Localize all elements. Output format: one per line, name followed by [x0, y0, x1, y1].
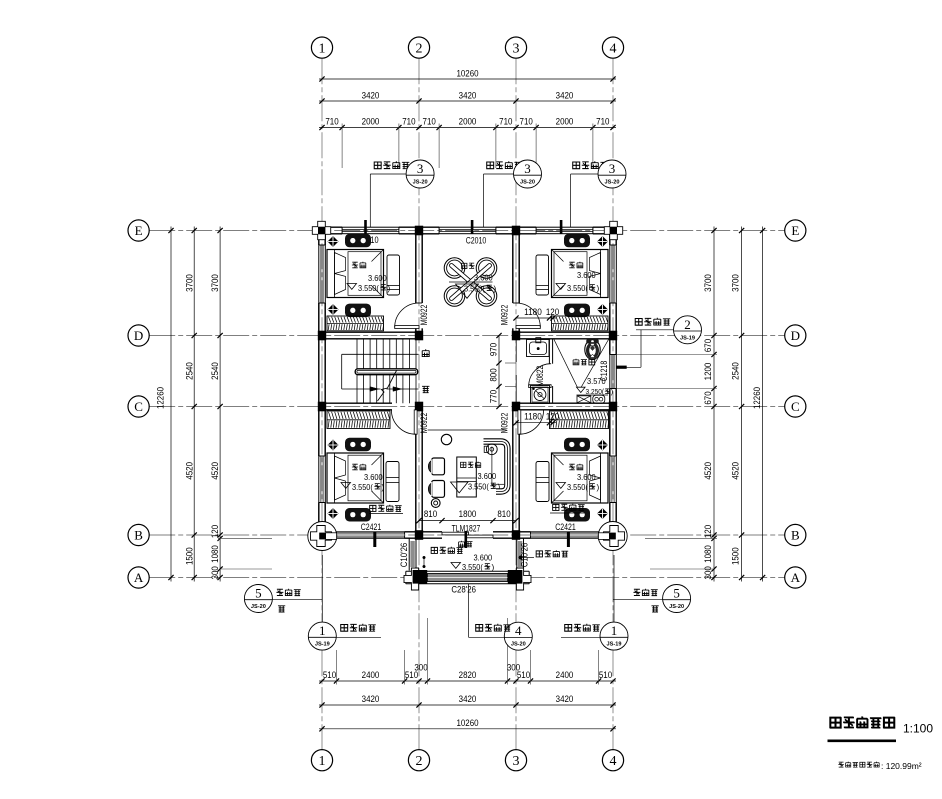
svg-text:3.600: 3.600 [368, 273, 387, 283]
svg-text:JS-19: JS-19 [680, 335, 695, 341]
svg-text:1800: 1800 [459, 509, 477, 520]
svg-text:120: 120 [210, 525, 221, 538]
svg-text:3.550(: 3.550( [464, 284, 485, 294]
svg-text:1:100: 1:100 [903, 722, 933, 736]
svg-text:970: 970 [489, 343, 500, 356]
svg-text:3700: 3700 [210, 274, 221, 292]
svg-text:: 120.99m²: : 120.99m² [881, 761, 922, 771]
svg-text:): ) [597, 284, 600, 293]
svg-text:2400: 2400 [362, 670, 380, 681]
svg-text:B: B [134, 528, 143, 543]
svg-text:2540: 2540 [184, 362, 195, 380]
svg-text:3.550(: 3.550( [352, 482, 373, 492]
svg-text:4: 4 [610, 754, 617, 769]
svg-text:C28'26: C28'26 [451, 585, 476, 595]
svg-text:3.600: 3.600 [364, 472, 383, 482]
svg-text:C2421: C2421 [361, 522, 382, 532]
svg-text:3420: 3420 [459, 91, 477, 102]
svg-text:2820: 2820 [459, 670, 477, 681]
svg-text:): ) [494, 285, 497, 294]
svg-text:): ) [611, 387, 613, 396]
svg-text:): ) [382, 483, 385, 492]
svg-text:770: 770 [489, 390, 500, 403]
svg-text:10260: 10260 [456, 718, 478, 729]
svg-text:B: B [791, 528, 800, 543]
svg-text:710: 710 [402, 117, 415, 128]
svg-text:M0822: M0822 [535, 366, 545, 387]
svg-text:710: 710 [499, 117, 512, 128]
svg-text:300: 300 [703, 566, 714, 579]
svg-text:670: 670 [703, 339, 714, 352]
svg-text:710: 710 [325, 117, 338, 128]
svg-text:JS-19: JS-19 [315, 642, 330, 648]
svg-text:3.600: 3.600 [577, 472, 596, 482]
svg-text:3: 3 [609, 161, 616, 176]
svg-text:D: D [791, 328, 800, 343]
svg-text:800: 800 [489, 368, 500, 381]
svg-text:4: 4 [610, 41, 617, 56]
svg-text:300: 300 [210, 566, 221, 579]
svg-text:1: 1 [611, 623, 618, 638]
svg-text:C2010: C2010 [466, 236, 487, 246]
svg-text:A: A [791, 570, 801, 585]
svg-text:10: 10 [370, 235, 378, 245]
svg-text:JS-20: JS-20 [605, 180, 620, 186]
svg-text:5: 5 [255, 586, 262, 601]
svg-text:3.550(: 3.550( [567, 482, 588, 492]
svg-text:JS-20: JS-20 [511, 642, 526, 648]
svg-text:): ) [597, 483, 600, 492]
svg-text:JS-20: JS-20 [520, 180, 535, 186]
svg-text:E: E [791, 223, 799, 238]
svg-text:3420: 3420 [459, 694, 477, 705]
svg-text:2000: 2000 [556, 117, 574, 128]
svg-text:1500: 1500 [184, 547, 195, 565]
svg-text:D: D [134, 328, 143, 343]
svg-text:300: 300 [507, 663, 520, 674]
svg-text:3.600: 3.600 [474, 273, 493, 283]
svg-text:2540: 2540 [731, 362, 742, 380]
svg-text:2000: 2000 [459, 117, 477, 128]
svg-text:3.600: 3.600 [478, 471, 497, 481]
svg-text:2: 2 [416, 41, 423, 56]
svg-text:12260: 12260 [752, 387, 763, 409]
svg-text:C10'26: C10'26 [399, 543, 409, 568]
svg-text:M0922: M0922 [419, 305, 429, 326]
svg-text:810: 810 [424, 509, 437, 520]
svg-text:5: 5 [673, 586, 680, 601]
svg-text:C2421: C2421 [555, 522, 576, 532]
svg-text:C: C [791, 399, 800, 414]
svg-text:2000: 2000 [362, 117, 380, 128]
svg-text:3420: 3420 [362, 694, 380, 705]
svg-text:510: 510 [599, 670, 612, 681]
svg-text:3.550(: 3.550( [358, 283, 379, 293]
svg-text:2: 2 [684, 317, 691, 332]
svg-text:3.550(: 3.550( [462, 562, 483, 572]
svg-text:E: E [135, 223, 143, 238]
svg-text:3: 3 [513, 754, 520, 769]
svg-text:670: 670 [703, 391, 714, 404]
svg-text:3420: 3420 [556, 91, 574, 102]
svg-text:4520: 4520 [210, 462, 221, 480]
svg-text:3.550(: 3.550( [567, 283, 588, 293]
svg-text:M0922: M0922 [499, 413, 509, 434]
svg-text:4520: 4520 [731, 462, 742, 480]
svg-text:3.570: 3.570 [587, 376, 606, 386]
svg-text:710: 710 [423, 117, 436, 128]
svg-text:710: 710 [520, 117, 533, 128]
svg-text:3: 3 [417, 161, 424, 176]
svg-text:12260: 12260 [156, 387, 167, 409]
svg-text:1200: 1200 [703, 363, 714, 381]
svg-text:3420: 3420 [556, 694, 574, 705]
svg-text:1080: 1080 [210, 545, 221, 563]
svg-text:2540: 2540 [210, 362, 221, 380]
svg-text:4520: 4520 [184, 462, 195, 480]
svg-text:C10'26: C10'26 [520, 543, 530, 568]
svg-text:3700: 3700 [184, 274, 195, 292]
svg-text:3.600: 3.600 [474, 553, 493, 563]
svg-text:M0922: M0922 [419, 413, 429, 434]
svg-text:3420: 3420 [362, 91, 380, 102]
svg-text:1080: 1080 [703, 545, 714, 563]
svg-text:1180: 1180 [524, 412, 542, 423]
svg-text:JS-20: JS-20 [251, 604, 266, 610]
svg-text:JS-20: JS-20 [413, 180, 428, 186]
svg-text:M0922: M0922 [499, 305, 509, 326]
svg-text:3.550(: 3.550( [468, 482, 489, 492]
svg-text:4: 4 [515, 623, 522, 638]
svg-text:A: A [134, 570, 144, 585]
svg-text:2400: 2400 [556, 670, 574, 681]
svg-text:120: 120 [703, 525, 714, 538]
svg-text:710: 710 [596, 117, 609, 128]
svg-text:1: 1 [319, 623, 326, 638]
svg-text:1: 1 [319, 754, 326, 769]
svg-text:10260: 10260 [456, 69, 478, 80]
svg-text:3: 3 [524, 161, 531, 176]
svg-text:3700: 3700 [703, 274, 714, 292]
svg-text:): ) [388, 284, 391, 293]
svg-text:3700: 3700 [731, 274, 742, 292]
svg-text:2: 2 [416, 754, 423, 769]
svg-text:510: 510 [323, 670, 336, 681]
svg-text:1180: 1180 [524, 307, 542, 318]
svg-text:3.600: 3.600 [577, 270, 596, 280]
svg-text:1500: 1500 [731, 547, 742, 565]
svg-text:3: 3 [513, 41, 520, 56]
svg-text:C: C [134, 399, 143, 414]
svg-text:4520: 4520 [703, 462, 714, 480]
svg-text:): ) [492, 563, 495, 572]
svg-text:JS-19: JS-19 [607, 642, 622, 648]
svg-text:JS-20: JS-20 [669, 604, 684, 610]
svg-text:TLM1827: TLM1827 [452, 524, 481, 534]
svg-text:810: 810 [497, 509, 510, 520]
svg-text:300: 300 [414, 663, 427, 674]
svg-text:1: 1 [319, 41, 326, 56]
